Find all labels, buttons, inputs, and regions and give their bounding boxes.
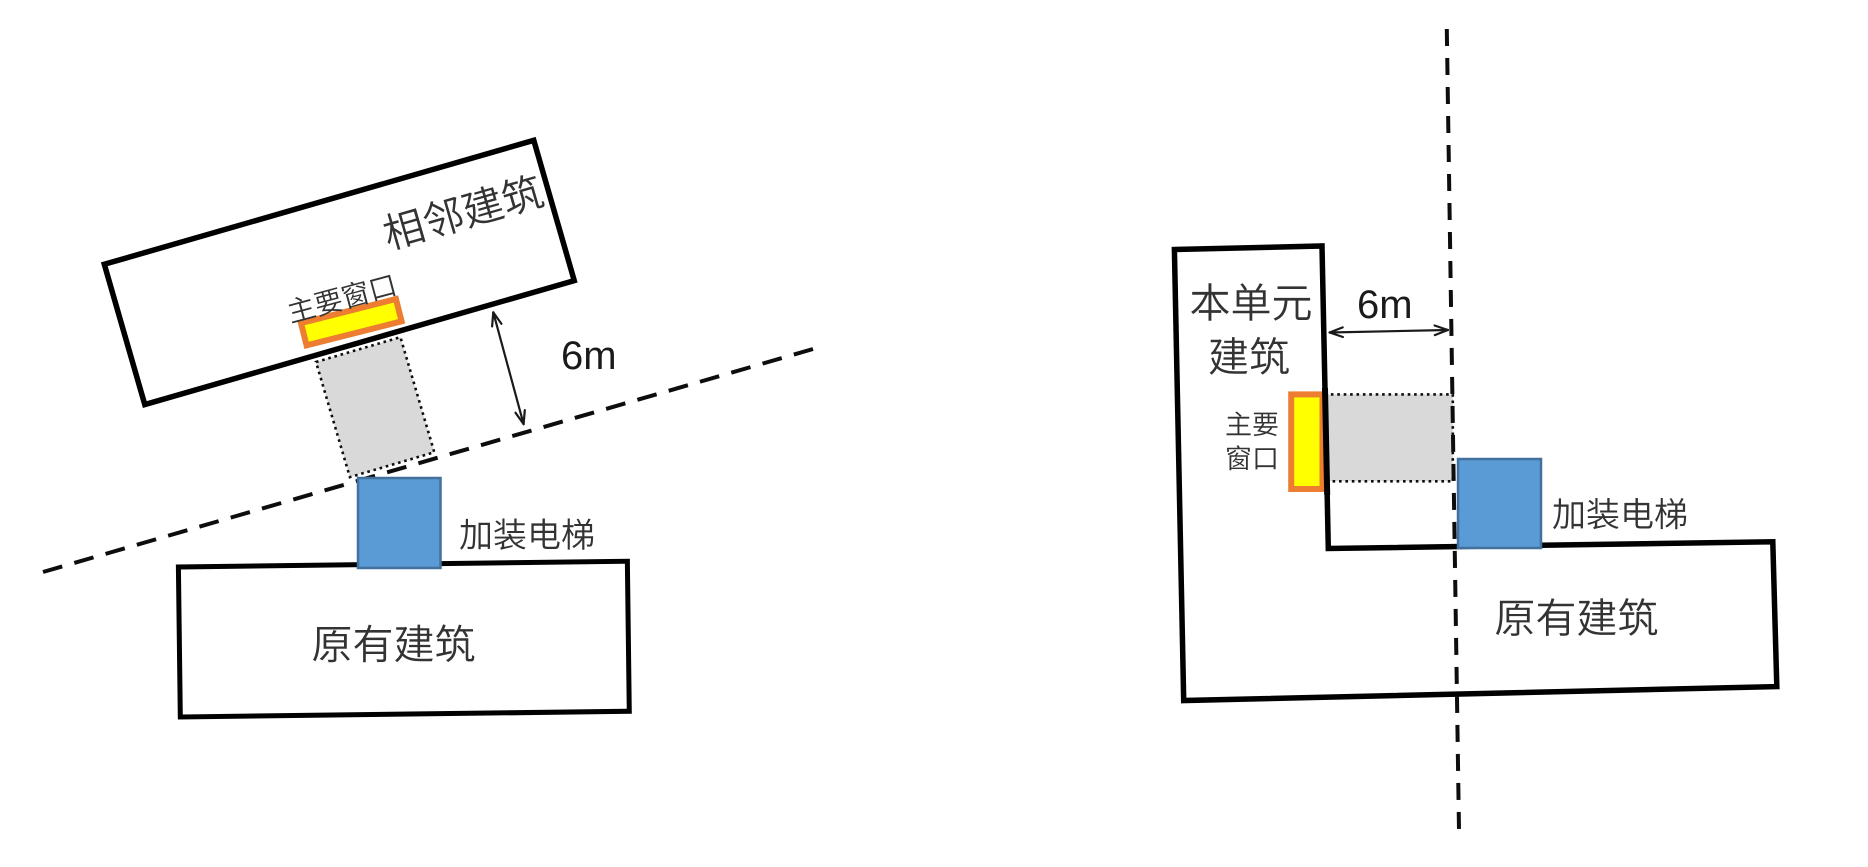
svg-text:6m: 6m [1357, 283, 1413, 327]
svg-text:6m: 6m [561, 334, 617, 378]
